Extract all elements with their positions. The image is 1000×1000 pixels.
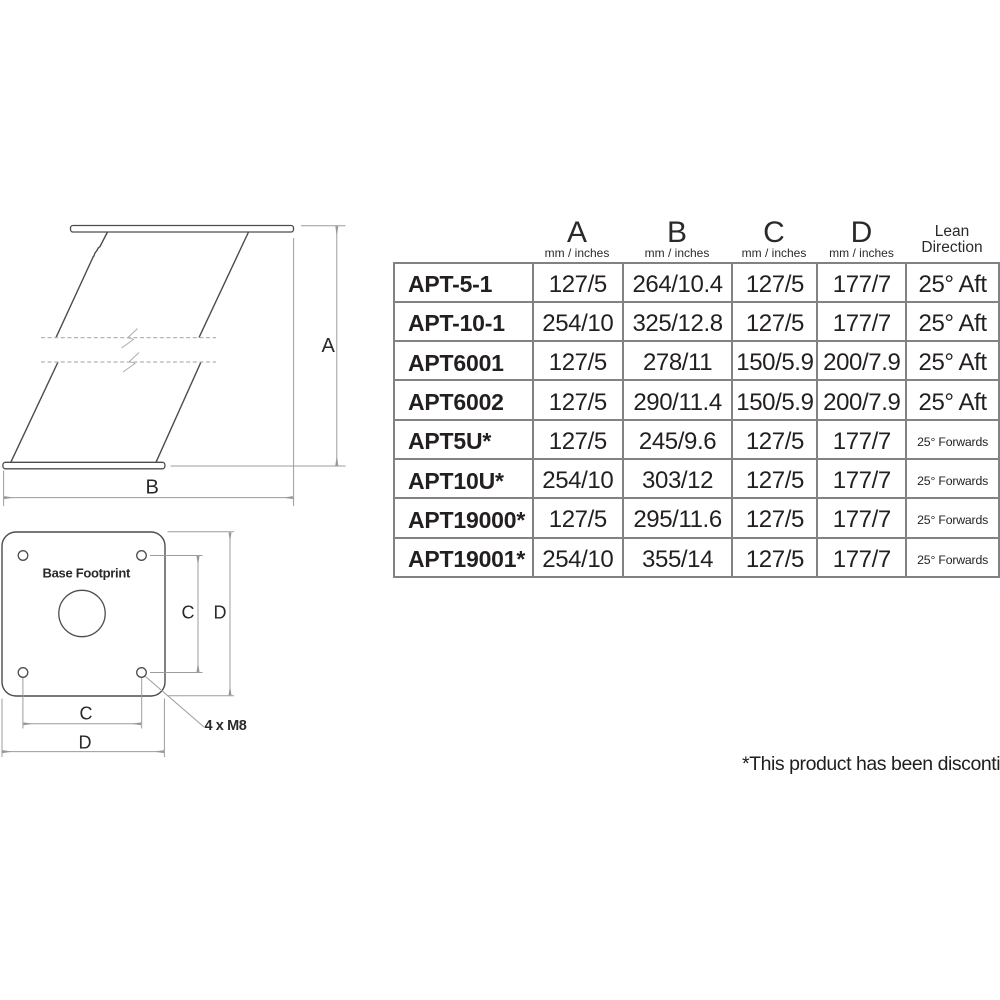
svg-text:C: C	[182, 603, 195, 623]
svg-text:C: C	[80, 704, 93, 724]
svg-text:Base Footprint: Base Footprint	[43, 566, 131, 581]
svg-text:D: D	[214, 603, 227, 623]
svg-text:A: A	[322, 335, 336, 357]
svg-text:4 x M8: 4 x M8	[205, 718, 247, 734]
svg-text:B: B	[146, 477, 159, 499]
svg-text:D: D	[79, 733, 92, 753]
